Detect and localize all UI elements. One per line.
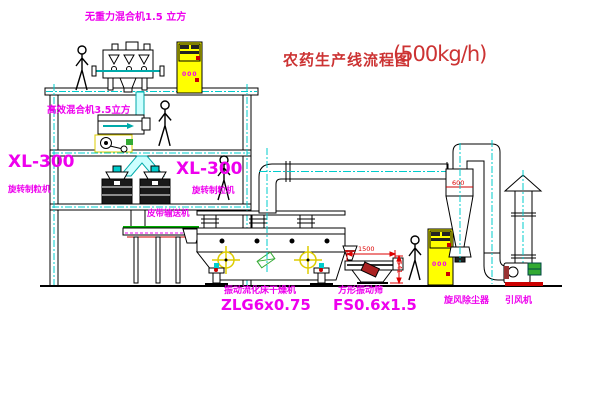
cyclone-separator [446,144,512,280]
label-gravity-mixer: 无重力混合机1.5 立方 [85,13,186,23]
label-screen-model: FS0.6x1.5 [333,298,417,313]
induced-draft-fan-machine [504,263,543,286]
label-granulator-name-right: 旋转制粒机 [192,187,235,196]
cabinet-upper-display: 000 [182,72,198,78]
high-efficiency-mixer-machine [95,115,150,152]
worker-figure-ground [409,236,421,280]
dimension-screen-height: 541 [396,261,403,273]
gravity-mixer-machine [92,42,164,92]
cyclone-diameter-marking: 600 [452,180,464,187]
worker-figure-floor2 [159,101,171,146]
control-cabinet-upper [177,42,202,93]
cabinet-lower-display: 000 [432,262,448,268]
diagram-capacity: (500kg/h) [393,44,486,65]
label-high-mixer: 高效混合机3.5立方 [47,106,130,116]
worker-figure-roof [76,46,88,90]
label-dryer-model: ZLG6x0.75 [221,298,311,313]
label-granulator-model-left: XL-300 [8,154,74,171]
label-cyclone-name: 旋风除尘器 [444,297,489,306]
label-granulator-model-right: XL-300 [176,161,242,178]
label-dryer-name: 振动流化床干燥机 [224,287,296,296]
granulator-left-machine [102,166,132,204]
label-fan-name: 引风机 [505,297,532,306]
discharge-duct [131,210,145,228]
diagram-title: 农药生产线流程图 [283,53,411,68]
process-flow-diagram: 农药生产线流程图 (500kg/h) 无重力混合机1.5 立方 高效混合机3.5… [0,0,600,403]
dimension-screen-length: 1500 [358,246,375,253]
label-granulator-name-left: 旋转制粒机 [8,186,51,195]
label-belt-conveyor: 皮带输送机 [147,210,190,219]
label-screen-name: 方形振动筛 [338,287,383,296]
granulator-right-machine [140,166,170,204]
belt-conveyor-machine [123,227,200,283]
